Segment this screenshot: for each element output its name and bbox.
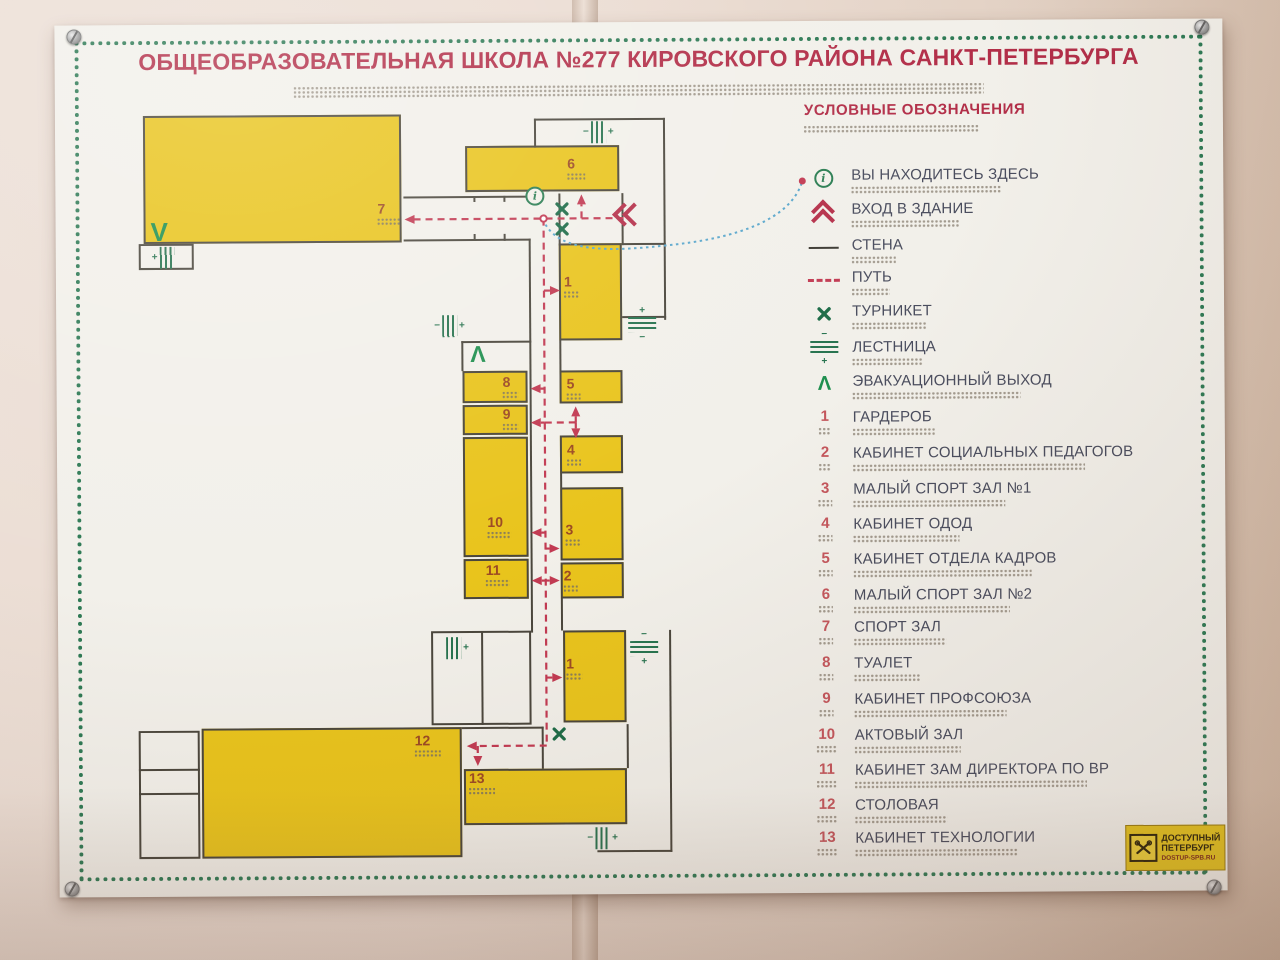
legend-room-row: 8 ТУАЛЕТ [807, 652, 1237, 682]
plan-room-number: 1 [564, 274, 580, 298]
plan-room-number: 2 [564, 568, 578, 592]
plan-room-number: 8 [502, 375, 518, 399]
legend-item-entrance: ВХОД В ЗДАНИЕ [804, 198, 1234, 228]
plan-room-number: 7 [377, 201, 399, 225]
legend-room-row: 3 МАЛЫЙ СПОРТ ЗАЛ №1 [806, 478, 1236, 508]
stairs-icon: −+ [805, 333, 843, 363]
legend-item-turnstile: ТУРНИКЕТ [805, 300, 1235, 330]
stairs-icon: −+ [583, 121, 614, 143]
legend-room-row: 1 ГАРДЕРОБ [806, 406, 1236, 436]
turnstile-icon [805, 301, 843, 327]
plan-room-number: 10 [487, 515, 511, 539]
plan-room-number: 11 [486, 563, 510, 587]
evacuation-exit-icon: Λ [805, 371, 843, 397]
turnstile-icon [554, 201, 569, 221]
plan-room-number: 6 [567, 156, 585, 180]
legend-room-row: 6 МАЛЫЙ СПОРТ ЗАЛ №2 [807, 584, 1237, 614]
turnstile-icon [552, 726, 567, 746]
plan-room-number: 3 [565, 522, 581, 546]
legend-room-row: 12 СТОЛОВАЯ [808, 794, 1238, 824]
evacuation-exit-icon: V [151, 217, 169, 248]
you-are-here-icon: i [804, 165, 842, 191]
legend-room-row: 7 СПОРТ ЗАЛ [807, 616, 1237, 646]
logo-line1: ДОСТУПНЫЙ [1161, 832, 1220, 842]
legend-item-stairs: −+ ЛЕСТНИЦА [805, 332, 1235, 366]
legend-title: УСЛОВНЫЕ ОБОЗНАЧЕНИЯ [804, 101, 1026, 119]
plan-room-number: 4 [567, 442, 581, 466]
school-floor-plan-sign: ОБЩЕОБРАЗОВАТЕЛЬНАЯ ШКОЛА №277 КИРОВСКОГ… [54, 18, 1227, 897]
plan-room-number: 13 [469, 771, 495, 795]
legend-room-row: 9 КАБИНЕТ ПРОФСОЮЗА [807, 688, 1237, 718]
path-icon [805, 267, 843, 293]
stairs-icon: −+ [434, 315, 465, 337]
plan-room-number: 1 [566, 656, 582, 680]
building-entrance-icon [804, 199, 842, 227]
dostup-spb-logo: ДОСТУПНЫЙ ПЕТЕРБУРГ DOSTUP-SPB.RU [1125, 824, 1225, 871]
you-are-here-icon: i [525, 187, 544, 206]
legend-title-braille [804, 125, 979, 133]
stairs-icon: + [152, 247, 175, 269]
turnstile-icon [555, 221, 570, 241]
legend-item-path: ПУТЬ [805, 266, 1235, 296]
logo-line3: DOSTUP-SPB.RU [1161, 853, 1220, 863]
plan-room-number: 12 [415, 733, 441, 757]
stairs-icon: −+ [587, 827, 618, 849]
legend-room-row: 5 КАБИНЕТ ОТДЕЛА КАДРОВ [807, 548, 1237, 578]
legend-item-wall: СТЕНА [805, 234, 1235, 264]
legend-room-row: 4 КАБИНЕТ ОДОД [806, 513, 1236, 543]
logo-line2: ПЕТЕРБУРГ [1161, 842, 1220, 852]
photo-of-wall-sign: ОБЩЕОБРАЗОВАТЕЛЬНАЯ ШКОЛА №277 КИРОВСКОГ… [0, 0, 1280, 960]
plan-room-number: 5 [567, 376, 581, 400]
stairs-icon: +− [628, 306, 656, 343]
stairs-icon: + [446, 637, 469, 659]
legend-room-row: 11 КАБИНЕТ ЗАМ ДИРЕКТОРА ПО ВР [808, 759, 1238, 789]
crossed-tools-icon [1129, 834, 1157, 862]
legend-room-row: 10 АКТОВЫЙ ЗАЛ [808, 724, 1238, 754]
plan-room-number: 9 [503, 407, 519, 431]
wall-icon [805, 235, 843, 261]
stairs-icon: −+ [630, 630, 658, 667]
evacuation-exit-icon: Λ [470, 341, 486, 368]
legend-item-you-are-here: i ВЫ НАХОДИТЕСЬ ЗДЕСЬ [804, 164, 1234, 194]
building-entrance-icon [615, 202, 647, 228]
legend-item-evacuation-exit: Λ ЭВАКУАЦИОННЫЙ ВЫХОД [805, 370, 1235, 400]
legend-room-row: 2 КАБИНЕТ СОЦИАЛЬНЫХ ПЕДАГОГОВ [806, 442, 1236, 472]
